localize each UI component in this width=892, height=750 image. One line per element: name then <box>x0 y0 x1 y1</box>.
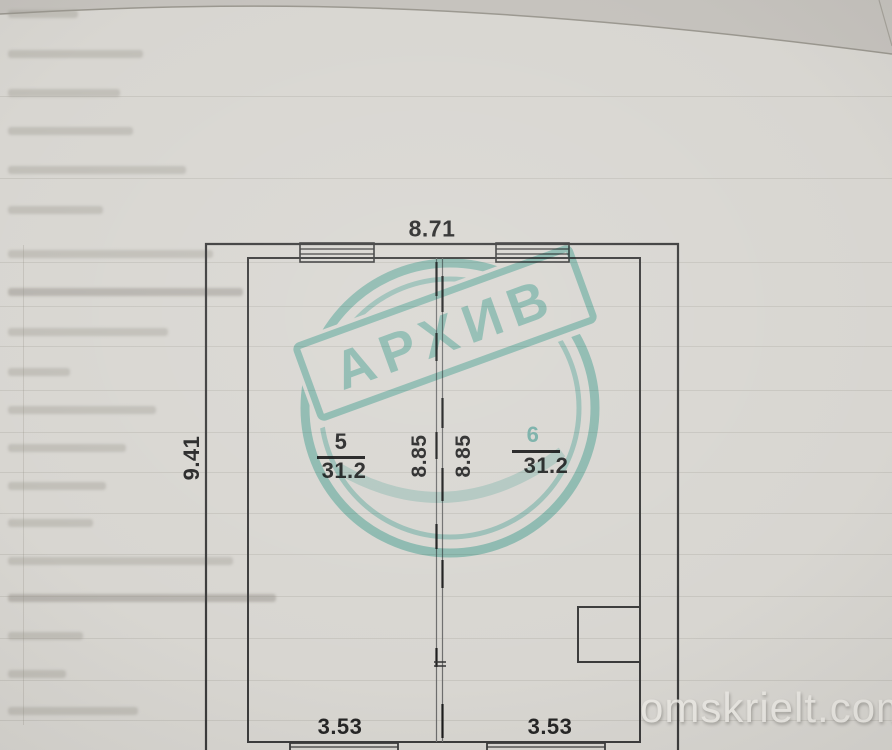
site-watermark: omskrielt.com <box>640 684 892 732</box>
page-edge <box>0 0 892 750</box>
